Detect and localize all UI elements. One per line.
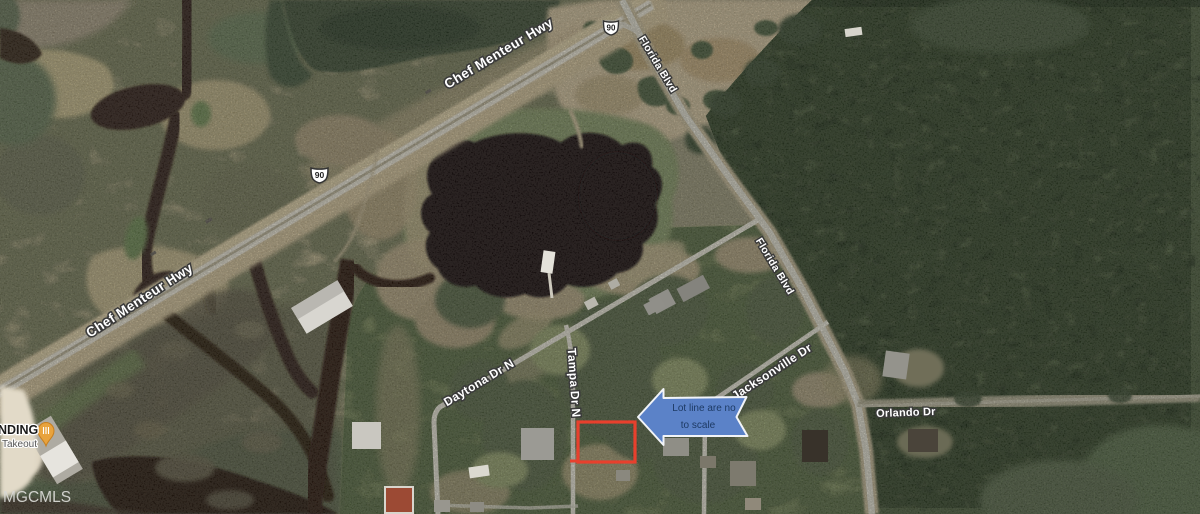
svg-text:to scale: to scale — [681, 420, 716, 431]
svg-text:90: 90 — [607, 24, 616, 33]
svg-text:Takeout: Takeout — [2, 439, 37, 450]
svg-text:Lot line are no: Lot line are no — [672, 403, 736, 414]
svg-text:NDING: NDING — [0, 423, 38, 437]
svg-text:90: 90 — [315, 170, 325, 180]
svg-text:Orlando Dr: Orlando Dr — [876, 406, 936, 420]
svg-text:MGCMLS: MGCMLS — [3, 489, 71, 506]
